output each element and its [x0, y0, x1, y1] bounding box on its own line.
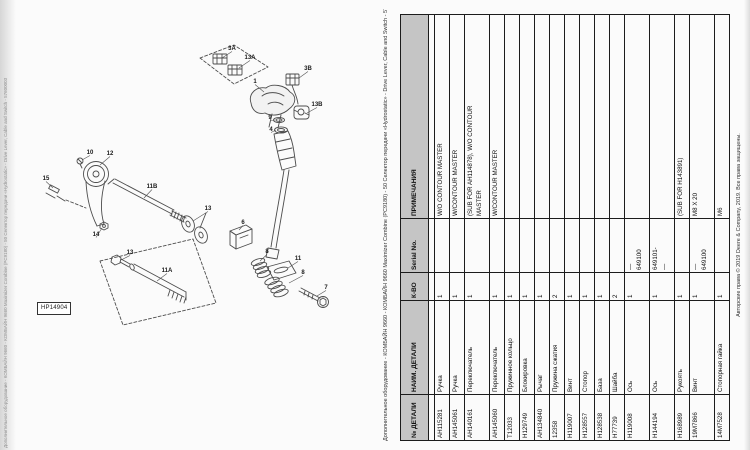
parts-table: № ДЕТАЛИ НАИМ. ДЕТАЛИ К-ВО Serial No. ПР…	[400, 14, 730, 441]
table-row: AH145060Переключатель1W/CONTOUR MASTER	[490, 15, 505, 441]
notes-cell	[520, 15, 535, 219]
washers	[179, 213, 209, 245]
part-number-cell: H128538	[595, 395, 610, 441]
serial-cell	[465, 219, 490, 273]
serial-cell	[580, 219, 595, 273]
qty-cell: 1	[690, 273, 715, 301]
part-number-cell: H144194	[650, 395, 675, 441]
callout-label: 15	[43, 176, 50, 182]
left-page: 3A13A13B13B9410121511B14131311A681187 HP…	[0, 0, 390, 450]
header-remarks: ПРИМЕЧАНИЯ	[401, 15, 429, 219]
header-serial-no: Serial No.	[401, 219, 429, 273]
switch-connector-3a	[213, 54, 227, 64]
part-name-cell: Винт	[565, 301, 580, 395]
callout-label: 11A	[162, 268, 173, 274]
right-page: Дополнительное оборудование - КОМБАЙН 96…	[382, 9, 746, 441]
table-row: AH140161Переключатель1(SUB FOR AH114878)…	[465, 15, 490, 441]
callout-leader-line	[193, 212, 208, 222]
shift-knob	[250, 85, 294, 128]
table-row: 19M7866Винт1— 649100M8 X 20	[690, 15, 715, 441]
notes-cell	[565, 15, 580, 219]
part-name-cell: Пружинное кольцо	[505, 301, 520, 395]
part-number-cell: AH145060	[490, 395, 505, 441]
part-name-cell: Ось	[650, 301, 675, 395]
serial-cell	[565, 219, 580, 273]
callout-leader-line	[100, 157, 110, 166]
qty-cell: 1	[450, 273, 465, 301]
part-number-cell: H119008	[625, 395, 650, 441]
part-name-cell: Блокировка	[520, 301, 535, 395]
part-name-cell: Шайба	[610, 301, 625, 395]
qty-cell: 1	[490, 273, 505, 301]
bracket	[230, 225, 252, 249]
parts-table-header: № ДЕТАЛИ НАИМ. ДЕТАЛИ К-ВО Serial No. ПР…	[401, 15, 429, 441]
header-part-name: НАИМ. ДЕТАЛИ	[401, 301, 429, 395]
screw	[77, 158, 83, 168]
serial-cell	[595, 219, 610, 273]
serial-cell	[675, 219, 690, 273]
exploded-diagram: 3A13A13B13B9410121511B14131311A681187	[0, 0, 390, 450]
callout-label: 11	[295, 256, 302, 262]
part-number-cell: H168989	[675, 395, 690, 441]
part-number-cell: H128557	[580, 395, 595, 441]
table-row: H129749Блокировка1	[520, 15, 535, 441]
qty-cell: 2	[550, 273, 565, 301]
table-row: H168989Рукоять1(SUB FOR H143891)	[675, 15, 690, 441]
lever-arm	[84, 162, 109, 227]
part-number-cell: AH134840	[535, 395, 550, 441]
serial-cell: — 649100	[625, 219, 650, 273]
part-number-cell: AH145061	[450, 395, 465, 441]
part-name-cell: Стопорная гайка	[715, 301, 730, 395]
serial-cell	[505, 219, 520, 273]
serial-cell	[535, 219, 550, 273]
base-plate	[267, 261, 296, 280]
scanned-parts-catalog-page: { "page": { "catalog_title": "Дополнител…	[0, 0, 750, 450]
notes-cell	[650, 15, 675, 219]
table-row: T12033Пружинное кольцо1	[505, 15, 520, 441]
notes-cell: M8 X 20	[690, 15, 715, 219]
part-name-cell: Ручка	[435, 301, 450, 395]
boot	[274, 131, 296, 170]
serial-cell	[520, 219, 535, 273]
callout-label: 13B	[311, 102, 323, 108]
part-name-cell: База	[595, 301, 610, 395]
serial-cell	[450, 219, 465, 273]
callout-label: 12	[107, 151, 114, 157]
callout-label: 13A	[244, 55, 256, 61]
part-number-cell: 14M7528	[715, 395, 730, 441]
qty-cell: 1	[595, 273, 610, 301]
table-row: H128538База1	[595, 15, 610, 441]
copyright-line: Авторские права © 2019 Deere & Company, …	[736, 9, 742, 441]
notes-cell: W/O CONTOUR MASTER	[435, 15, 450, 219]
notes-cell	[595, 15, 610, 219]
part-name-cell: Переключатель	[490, 301, 505, 395]
callout-label: 4	[269, 127, 273, 133]
serial-cell	[550, 219, 565, 273]
qty-cell: 1	[675, 273, 690, 301]
qty-cell: 1	[505, 273, 520, 301]
callout-leader-line	[317, 291, 326, 297]
part-name-cell: Стопор	[580, 301, 595, 395]
serial-cell	[490, 219, 505, 273]
table-row: AH115281Ручка1W/O CONTOUR MASTER	[435, 15, 450, 441]
notes-cell: M6	[715, 15, 730, 219]
lever-stem	[266, 170, 289, 259]
header-qty: К-ВО	[401, 273, 429, 301]
table-row: H119008Ось1— 649100	[625, 15, 650, 441]
notes-cell	[550, 15, 565, 219]
callout-leader-line	[82, 156, 90, 161]
part-name-cell: Винт	[690, 301, 715, 395]
table-row: 12358Пружина сжатия2	[550, 15, 565, 441]
part-name-cell: Ручка	[450, 301, 465, 395]
qty-cell: 1	[465, 273, 490, 301]
part-number-cell: 19M7866	[690, 395, 715, 441]
table-row: H128557Стопор1	[580, 15, 595, 441]
callout-label: 13	[127, 250, 134, 256]
table-row: AH134840Рычаг1	[535, 15, 550, 441]
part-name-cell: Рукоять	[675, 301, 690, 395]
callout-label: 14	[93, 232, 100, 238]
notes-cell	[505, 15, 520, 219]
table-row: 14M7528Стопорная гайка1M6	[715, 15, 730, 441]
notes-cell: (SUB FOR AH114878), W/O CONTOUR MASTER	[465, 15, 490, 219]
qty-cell: 2	[610, 273, 625, 301]
pin	[46, 185, 86, 208]
callout-label: 8	[265, 249, 269, 255]
table-row: H77739Шайба2	[610, 15, 625, 441]
callout-leader-line	[299, 72, 308, 79]
header-part-number: № ДЕТАЛИ	[401, 395, 429, 441]
part-name-cell: Пружина сжатия	[550, 301, 565, 395]
callout-layer: 3A13A13B13B9410121511B14131311A681187	[43, 46, 329, 296]
part-number-cell: T12033	[505, 395, 520, 441]
part-name-cell: Ось	[625, 301, 650, 395]
catalog-breadcrumb: Дополнительное оборудование - КОМБАЙН 96…	[382, 9, 390, 441]
serial-cell	[715, 219, 730, 273]
serial-cell: 649101- —	[650, 219, 675, 273]
part-name-cell: Переключатель	[465, 301, 490, 395]
callout-label: 1	[253, 79, 257, 85]
callout-label: 7	[324, 285, 328, 291]
notes-cell: W/CONTOUR MASTER	[490, 15, 505, 219]
cable-rod-lower	[129, 263, 186, 303]
part-number-cell: AH140161	[465, 395, 490, 441]
notes-cell	[610, 15, 625, 219]
qty-cell: 1	[625, 273, 650, 301]
callout-label: 13	[205, 206, 212, 212]
callout-leader-line	[239, 61, 250, 69]
qty-cell: 1	[580, 273, 595, 301]
serial-cell	[435, 219, 450, 273]
parts-tbody: AH115281Ручка1W/O CONTOUR MASTERAH145061…	[429, 15, 730, 441]
qty-cell: 1	[715, 273, 730, 301]
notes-cell	[535, 15, 550, 219]
qty-cell: 1	[650, 273, 675, 301]
callout-leader-line	[260, 255, 267, 262]
callout-leader-line	[289, 276, 303, 284]
switch-connector-13b	[294, 106, 309, 119]
switch-connector-13a	[228, 65, 242, 75]
qty-cell: 1	[565, 273, 580, 301]
serial-cell: — 649100	[690, 219, 715, 273]
callout-label: 3A	[228, 46, 236, 52]
serial-cell	[610, 219, 625, 273]
part-number-cell: AH115281	[435, 395, 450, 441]
callout-label: 8	[301, 270, 305, 276]
table-row: H144194Ось1649101- —	[650, 15, 675, 441]
callout-label: 3B	[304, 66, 312, 72]
part-name-cell: Рычаг	[535, 301, 550, 395]
dashed-kit-box	[100, 239, 216, 325]
qty-cell: 1	[435, 273, 450, 301]
part-number-cell: 12358	[550, 395, 565, 441]
part-number-cell: H119007	[565, 395, 580, 441]
notes-cell: (SUB FOR H143891)	[675, 15, 690, 219]
part-number-cell: H77739	[610, 395, 625, 441]
qty-cell: 1	[520, 273, 535, 301]
figure-label: HP14904	[37, 302, 71, 315]
part-number-cell: H129749	[520, 395, 535, 441]
qty-cell: 1	[535, 273, 550, 301]
table-row: AH145061Ручка1W/CONTOUR MASTER	[450, 15, 465, 441]
table-row: H119007Винт1	[565, 15, 580, 441]
callout-label: 10	[87, 150, 94, 156]
callout-label: 11B	[147, 184, 158, 190]
notes-cell: W/CONTOUR MASTER	[450, 15, 465, 219]
notes-cell	[625, 15, 650, 219]
notes-cell	[580, 15, 595, 219]
